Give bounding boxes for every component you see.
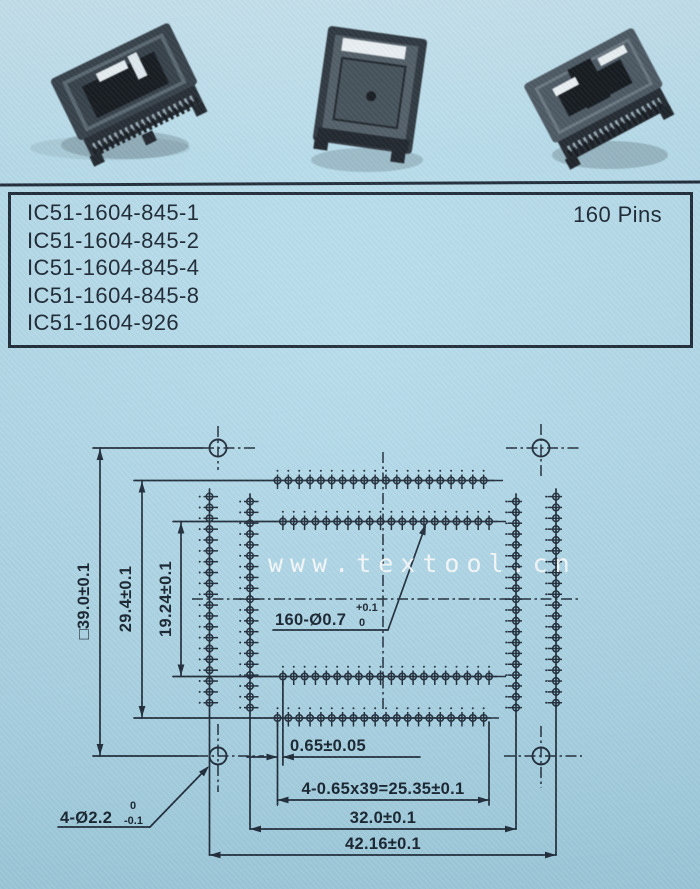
watermark-text: www.textool.cn xyxy=(268,549,577,578)
parts-list-panel: IC51-1604-845-1 IC51-1604-845-2 IC51-160… xyxy=(8,192,693,348)
dim-outer-cols: 42.16±0.1 xyxy=(345,835,421,853)
ic-socket-photo-right xyxy=(495,15,695,185)
dim-pin-hole-tol-upper: +0.1 xyxy=(356,602,378,614)
dim-inner-cols: 32.0±0.1 xyxy=(350,809,417,827)
dim-row-span: 4-0.65x39=25.35±0.1 xyxy=(302,780,465,798)
ic-socket-photo-left xyxy=(30,18,230,178)
part-number: IC51-1604-926 xyxy=(27,309,690,337)
ic-socket-photo-center xyxy=(292,10,452,178)
dim-mount-hole: 4-Ø2.2 xyxy=(60,809,112,827)
part-number: IC51-1604-845-4 xyxy=(27,254,690,282)
part-number: IC51-1604-845-8 xyxy=(27,282,690,310)
pin-count-label: 160 Pins xyxy=(573,202,662,228)
photo-band-separator xyxy=(0,180,700,186)
dim-outline-square: □39.0±0.1 xyxy=(75,563,93,640)
dim-mount-hole-tol-lower: -0.1 xyxy=(124,815,143,827)
part-number: IC51-1604-845-2 xyxy=(27,227,690,255)
dim-outer-rows: 29.4±0.1 xyxy=(117,566,135,633)
dim-pin-hole-tol-lower: 0 xyxy=(359,617,365,629)
dim-inner-rows: 19.24±0.1 xyxy=(157,561,175,637)
catalog-page: IC51-1604-845-1 IC51-1604-845-2 IC51-160… xyxy=(0,0,700,889)
dimension-drawing: □39.0±0.1 29.4±0.1 19.24±0.1 160-Ø0.7 +0… xyxy=(0,395,700,889)
dim-mount-hole-tol-upper: 0 xyxy=(130,800,136,812)
dim-pin-hole: 160-Ø0.7 xyxy=(275,611,346,629)
dim-pitch: 0.65±0.05 xyxy=(290,737,366,755)
